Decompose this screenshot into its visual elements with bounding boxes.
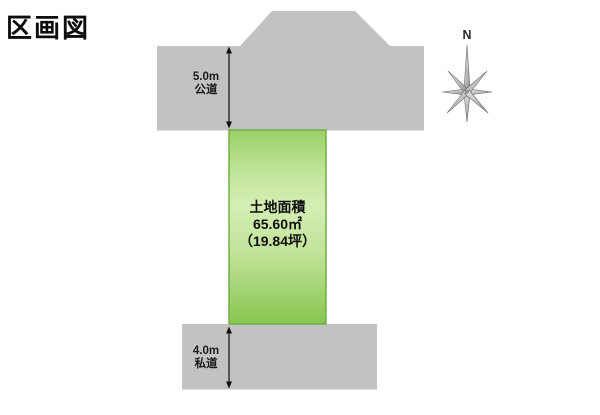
bottom-road-type: 私道	[184, 358, 228, 371]
compass-rose-icon	[442, 45, 492, 122]
land-plot-label: 土地面積 65.60㎡ （19.84坪）	[229, 199, 326, 250]
bottom-road-label: 4.0m 私道	[184, 345, 228, 371]
top-road-width: 5.0m	[184, 71, 228, 84]
land-area-sqm: 65.60㎡	[229, 216, 326, 233]
land-area-tsubo: （19.84坪）	[229, 233, 326, 250]
land-area-title: 土地面積	[229, 199, 326, 216]
top-road-type: 公道	[184, 84, 228, 97]
top-road-label: 5.0m 公道	[184, 71, 228, 97]
plot-map-page: 区画図	[0, 0, 600, 415]
compass-north-label: N	[451, 28, 483, 42]
bottom-road-width: 4.0m	[184, 345, 228, 358]
